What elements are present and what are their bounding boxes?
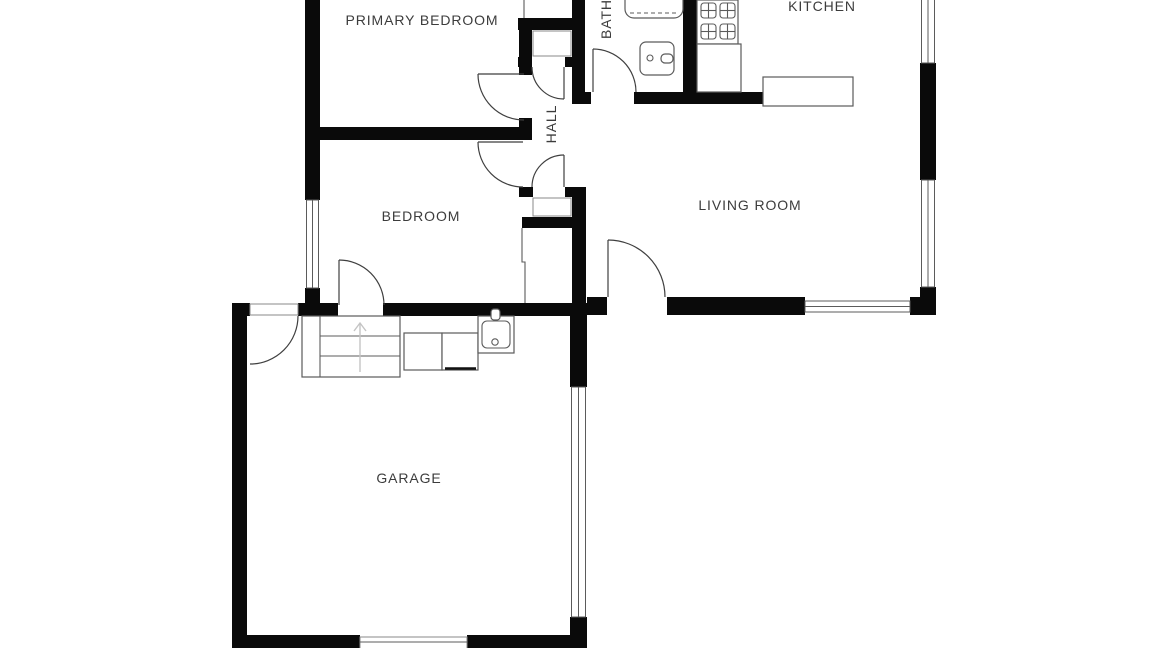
garage-door-panel: [360, 637, 467, 648]
dryer: [442, 333, 478, 370]
utility-sink: [478, 309, 514, 353]
room-label-hall: HALL: [543, 105, 559, 144]
room-label-primary-bedroom: PRIMARY BEDROOM: [345, 12, 498, 28]
window-garage-right: [572, 387, 586, 617]
stairs: [302, 316, 400, 377]
closet-hall-linen: [533, 198, 571, 216]
room-label-living-room: LIVING ROOM: [698, 197, 801, 213]
kitchen-counter: [697, 44, 741, 92]
window-bedroom-left: [307, 200, 319, 288]
stove: [697, 0, 738, 44]
window-living-room-right: [922, 180, 935, 287]
room-label-bedroom: BEDROOM: [382, 208, 461, 224]
bathroom-sink: [640, 42, 674, 75]
kitchen-island: [763, 77, 853, 106]
room-label-garage: GARAGE: [376, 470, 441, 486]
floor-plan: PRIMARY BEDROOM BEDROOM BATH HALL KITCHE…: [0, 0, 1170, 648]
room-label-bath: BATH: [598, 0, 614, 39]
window-kitchen-right: [922, 0, 935, 63]
window-living-room-front: [805, 301, 910, 312]
bathtub: [625, 0, 683, 18]
washer: [404, 333, 442, 370]
room-label-kitchen: KITCHEN: [788, 0, 856, 14]
